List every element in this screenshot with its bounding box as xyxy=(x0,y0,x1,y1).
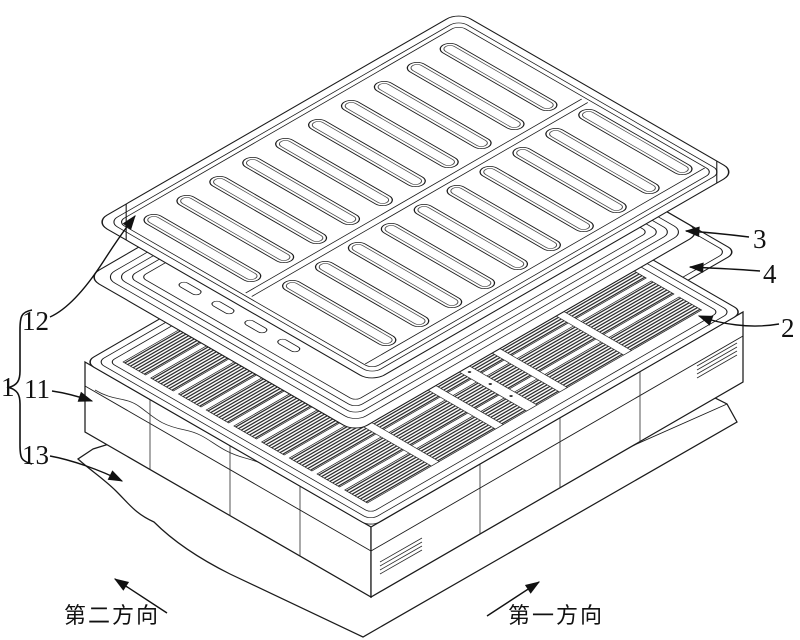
second-direction-label: 第二方向 xyxy=(64,603,160,628)
exploded-view-drawing: 12 1 11 13 3 4 2 第二方向 第一方向 xyxy=(0,0,800,640)
label-12: 12 xyxy=(22,306,49,336)
patent-figure-page: 12 1 11 13 3 4 2 第二方向 第一方向 xyxy=(0,0,800,640)
label-13: 13 xyxy=(22,440,49,470)
label-3: 3 xyxy=(753,224,767,254)
label-4: 4 xyxy=(763,259,777,289)
label-1: 1 xyxy=(1,372,15,402)
first-direction-label: 第一方向 xyxy=(508,603,604,628)
label-2: 2 xyxy=(781,313,795,343)
label-11: 11 xyxy=(24,374,50,404)
